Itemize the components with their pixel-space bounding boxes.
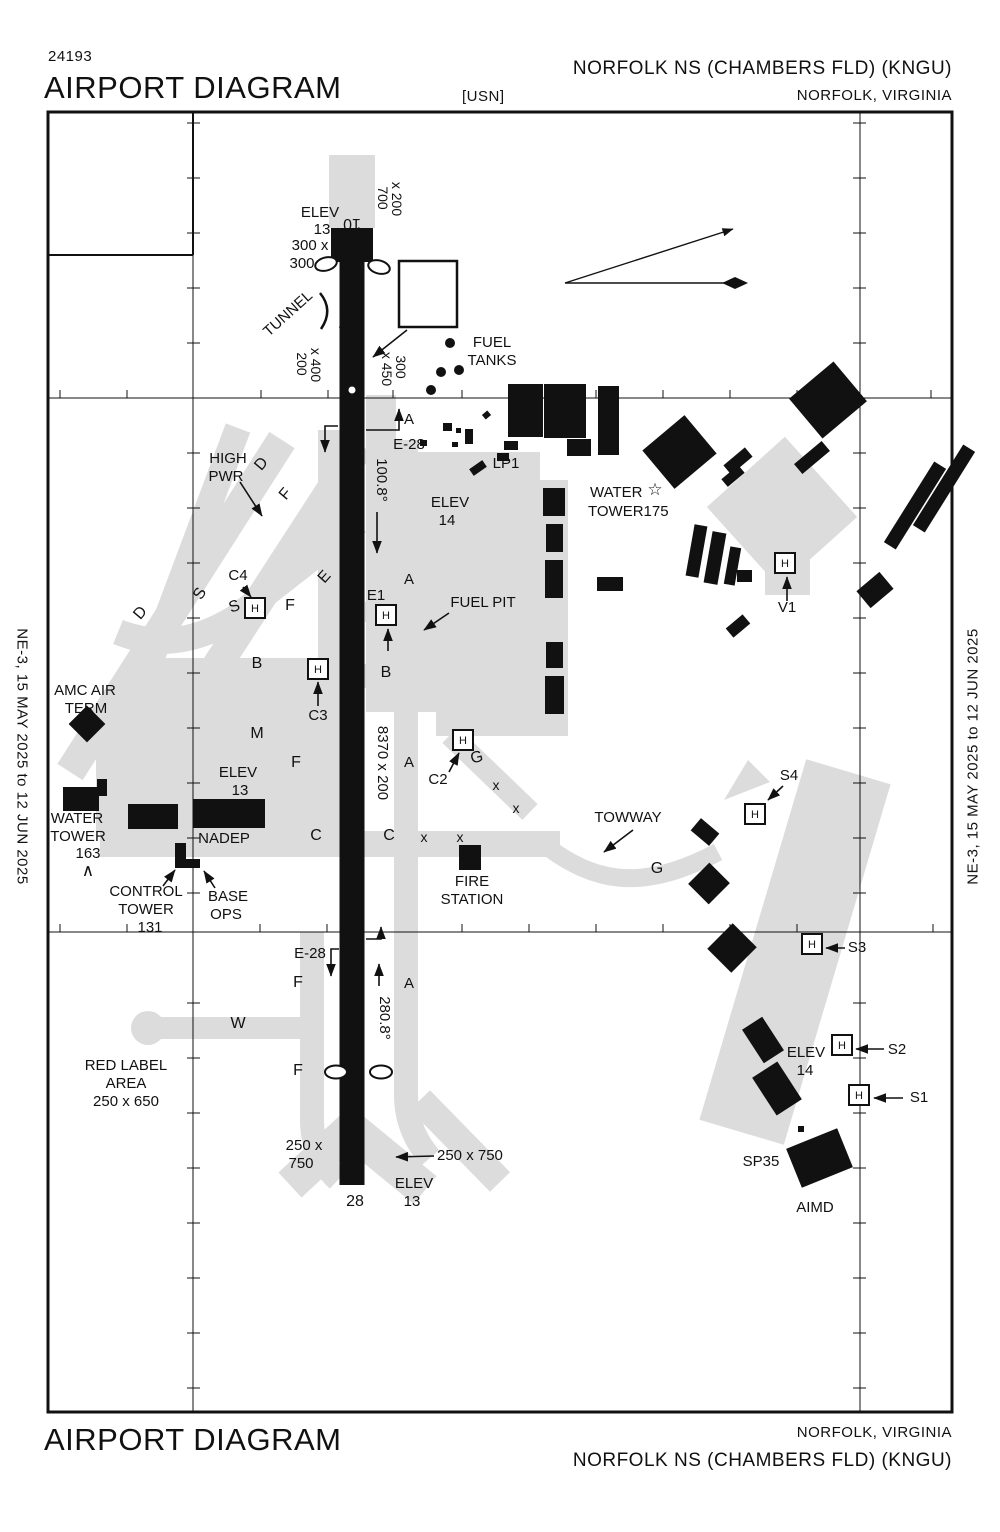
map-label: 100.8° [373,458,390,502]
fuel-tank-icon [454,365,464,375]
helipad-letter: H [808,939,816,951]
map-label: S1 [910,1089,928,1106]
map-label: LP1 [493,455,520,472]
fuel-tank-icon [445,338,455,348]
arresting-gear-icon [370,1066,392,1079]
map-label: x 200 [389,182,405,216]
building [546,642,563,668]
map-label: x [513,800,520,816]
building [504,441,518,450]
map-label: B [381,664,392,681]
map-label: ELEV [395,1175,433,1192]
map-label: 750 [288,1155,313,1172]
map-label: A [404,571,414,588]
pointer-arrow [204,871,215,888]
helipad-letter: H [314,664,322,676]
building [737,570,752,582]
pointer-arrow [604,830,633,852]
true-north-arrow [565,229,733,283]
pointer-arrow [449,753,459,772]
map-label: ELEV [219,764,257,781]
fuel-tank-icon [426,385,436,395]
map-label: C4 [228,567,247,584]
map-label: CONTROL [109,883,182,900]
map-label: BASE [208,888,248,905]
building [567,439,591,456]
map-label: ∧ [82,861,94,880]
map-label: 10 [343,215,361,232]
map-label: C [383,827,395,844]
map-label: ELEV [787,1044,825,1061]
map-label: 250 x [286,1137,323,1154]
building [856,572,893,608]
building [798,1126,804,1132]
building [546,524,563,552]
building [63,787,99,811]
helipad-letter: H [855,1090,863,1102]
map-label: W [230,1015,246,1032]
map-label: WATER [590,484,643,501]
map-label: 300 [289,255,314,272]
building [175,859,200,868]
arresting-gear-icon [367,258,392,276]
building [786,1128,853,1188]
map-label: 163 [75,845,100,862]
map-label: B [252,655,263,672]
building [544,384,586,438]
building [543,488,565,516]
map-label: C3 [308,707,327,724]
map-label: TUNNEL [260,287,316,340]
map-label: TOWWAY [594,809,661,826]
footer-city: NORFOLK, VIRGINIA [652,1424,952,1441]
map-label: S3 [848,939,866,956]
map-label: E-28 [294,945,326,962]
map-label: FUEL PIT [450,594,515,611]
map-label: G [651,860,663,877]
map-label: SP35 [743,1153,780,1170]
map-label: 13 [404,1193,421,1210]
map-label: 14 [797,1062,814,1079]
map-label: PWR [209,468,244,485]
building [508,384,543,437]
building [597,577,623,591]
helipad-letter: H [781,558,789,570]
map-label: C [310,827,322,844]
building [193,799,265,828]
map-label: 13 [232,782,249,799]
field-elev-box [399,261,457,327]
map-label: x [457,829,464,845]
map-label: E-28 [393,436,425,453]
helipad-letter: H [838,1040,846,1052]
taxiway [545,845,718,878]
map-label: RED LABEL [85,1057,168,1074]
map-label: V1 [778,599,796,616]
map-label: TOWER175 [588,503,669,520]
map-label: x 450 [379,352,395,386]
building [704,531,727,585]
runway-10-28 [340,228,365,1185]
footer-title: AIRPORT DIAGRAM [44,1422,341,1458]
building [97,779,107,796]
building [726,614,751,637]
building [452,442,458,447]
building [789,361,867,438]
map-label: AMC AIR [54,682,116,699]
map-label: M [250,725,263,742]
map-label: STATION [441,891,504,908]
airport-map: HHHHHHHHHELEV1310700x 200300 x300TUNNEL2… [0,0,1000,1532]
map-label: TERM [65,700,108,717]
map-label: A [404,975,414,992]
helipad-letter: H [459,735,467,747]
pointer-arrow [396,1156,434,1157]
map-label: WATER [51,810,104,827]
building [456,428,461,433]
map-label: F [276,485,295,504]
map-label: C2 [428,771,447,788]
apron-se-tip [724,760,770,800]
fuel-tank-icon [436,367,446,377]
map-label: S4 [780,767,798,784]
map-label: TOWER [118,901,174,918]
mag-north-arrowhead-icon [722,277,748,289]
building [545,560,563,598]
airport-diagram-page: 24193 AIRPORT DIAGRAM [USN] NORFOLK NS (… [0,0,1000,1532]
building [128,804,178,829]
hold-line-arrow [331,949,339,976]
map-label: F [293,1062,303,1079]
arresting-gear-icon [314,255,339,273]
map-label: OPS [210,906,242,923]
map-label: 13 [314,221,331,238]
arresting-gear-icon [325,1066,347,1079]
map-label: 14 [439,512,456,529]
hold-line-arrow [366,927,381,939]
map-label: ELEV [431,494,469,511]
map-label: 250 x 750 [437,1147,503,1164]
map-label: 250 x 650 [93,1093,159,1110]
map-label: 28 [346,1193,364,1210]
building [642,415,716,489]
map-label: D [130,603,150,623]
map-label: E1 [367,587,385,604]
helipad-letter: H [251,603,259,615]
map-label: A [404,754,414,771]
helipad-letter: H [382,610,390,622]
helipad-letter: H [751,809,759,821]
map-label: 200 [294,352,310,376]
map-label: F [291,754,301,771]
map-label: F [293,974,303,991]
apron-center-north [366,395,396,455]
map-label: 300 x [292,237,329,254]
map-label: 8370 x 200 [374,726,391,800]
building [598,386,619,455]
map-label: S2 [888,1041,906,1058]
map-label: FUEL [473,334,511,351]
runway-dot [349,387,356,394]
map-label: HIGH [209,450,247,467]
taxiway-hammerhead [131,1011,165,1045]
map-label: A [404,411,414,428]
building [465,429,473,444]
map-label: TOWER [50,828,106,845]
building [482,410,491,419]
map-label: x [493,777,500,793]
building [545,676,564,714]
map-label: 700 [375,186,391,210]
map-label: 280.8° [376,996,393,1040]
building [443,423,452,431]
map-label: 300 [393,355,409,379]
map-label: 131 [137,919,162,936]
map-label: AIMD [796,1199,834,1216]
building [691,818,720,846]
map-label: x 400 [308,348,324,382]
tunnel-bracket-icon [320,293,327,329]
map-label: TANKS [468,352,517,369]
map-label: ☆ [647,480,662,499]
building [686,524,708,577]
map-label: x [421,829,428,845]
map-label: F [285,597,295,614]
map-label: FIRE [455,873,489,890]
building [459,845,481,870]
map-label: AREA [106,1075,147,1092]
footer-airport: NORFOLK NS (CHAMBERS FLD) (KNGU) [452,1450,952,1472]
pointer-arrow [768,786,783,800]
map-label: ELEV [301,204,339,221]
map-label: NADEP [198,830,250,847]
